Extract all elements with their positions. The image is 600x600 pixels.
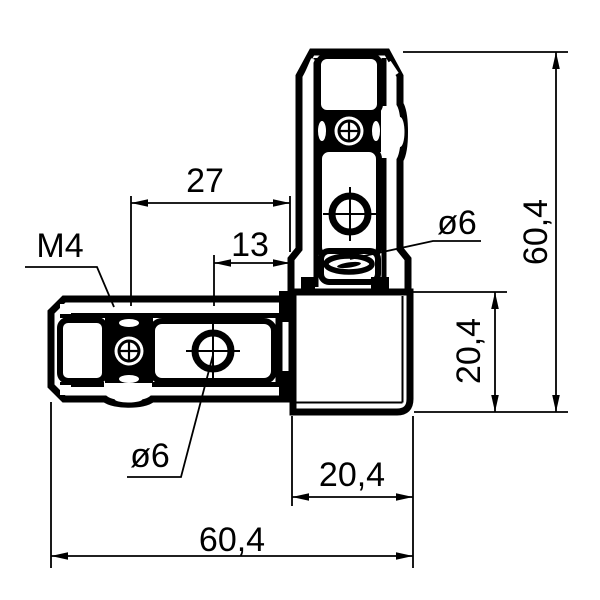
dim-block-height: 20,4 [413,292,507,412]
corner-block [293,292,410,412]
horizontal-member [51,291,293,404]
corner-notch-bottom-left [60,385,71,395]
block-height-label: 20,4 [450,318,488,384]
dim-13-arrow-right [273,259,290,267]
block-height-arrow-top [491,292,499,309]
m4-label: M4 [36,227,83,265]
overall-width-label: 60,4 [199,521,265,559]
vertical-top-window [318,56,380,113]
dim-block-width: 20,4 [292,416,413,568]
drawing-canvas: 27 13 M4 ø6 ø6 60,4 20,4 [0,0,600,600]
corner-block-outline [293,292,410,412]
m4-boss-cutout-top [119,319,139,327]
label-m4: M4 [25,227,114,307]
corner-notch-top-left [60,304,71,314]
overall-width-arrow-left [51,552,68,560]
boss-cutout-left [318,121,326,141]
dim-13-arrow-left [214,259,231,267]
overall-height-label: 60,4 [517,199,555,265]
m4-boss-cutout-bottom [119,375,139,383]
dim-27-arrow-right [273,199,290,207]
overall-height-arrow-bottom [552,395,560,412]
boss-cutout-right [372,121,380,141]
side-bulge-slot [396,117,405,147]
dim-27-arrow-left [131,199,148,207]
dia6-top-label: ø6 [437,204,477,242]
dim-13-label: 13 [231,226,269,264]
horizontal-left-window [60,320,105,381]
dia6-bottom-label: ø6 [130,437,170,475]
vertical-member [291,52,408,293]
bottom-bulge-slot [115,396,143,403]
technical-drawing: 27 13 M4 ø6 ø6 60,4 20,4 [0,0,600,600]
block-width-arrow-left [292,493,309,501]
dim-13: 13 [214,226,290,306]
overall-width-arrow-right [396,552,413,560]
overall-height-arrow-top [552,52,560,69]
block-width-arrow-right [396,493,413,501]
block-height-arrow-bottom [491,395,499,412]
block-width-label: 20,4 [319,456,385,494]
dim-27-label: 27 [186,162,224,200]
